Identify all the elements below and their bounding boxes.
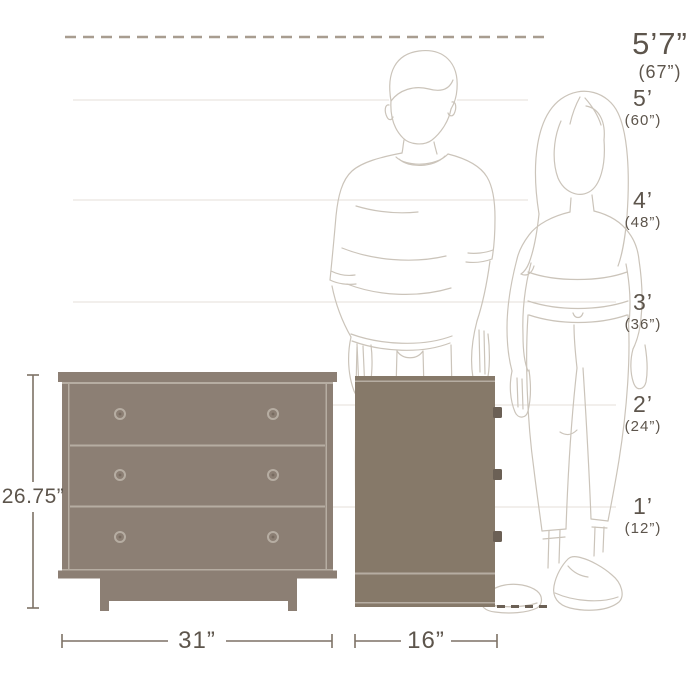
bottom-gap-line bbox=[62, 569, 333, 571]
height-marker-4ft: 4’ (48”) bbox=[593, 189, 693, 230]
depth-dimension-label: 16” bbox=[376, 629, 476, 653]
drawer-divider-1 bbox=[70, 445, 325, 447]
size-comparison-diagram: 5’7” (67”) 5’ (60”) 4’ (48”) 3’ (36”) 2’… bbox=[0, 0, 700, 700]
side-body bbox=[355, 376, 495, 607]
drawer-knob-dot bbox=[119, 413, 122, 416]
dresser-bottom-board bbox=[58, 571, 337, 579]
side-top-line bbox=[355, 381, 495, 383]
height-marker-inches: (48”) bbox=[593, 215, 693, 230]
height-marker-3ft: 3’ (36”) bbox=[593, 291, 693, 332]
height-marker-2ft: 2’ (24”) bbox=[593, 393, 693, 434]
width-dimension-label: 31” bbox=[147, 629, 247, 653]
dresser-top-board bbox=[58, 372, 337, 382]
dresser-front-view bbox=[58, 372, 337, 611]
height-marker-inches: (60”) bbox=[593, 113, 693, 128]
dresser-leg-right bbox=[288, 578, 297, 611]
drawer-knob-dot bbox=[119, 474, 122, 477]
height-marker-inches: (24”) bbox=[593, 419, 693, 434]
drawer-knob-dot bbox=[272, 536, 275, 539]
drawer-knob-dot bbox=[119, 536, 122, 539]
drawer-knob-dot bbox=[272, 413, 275, 416]
height-marker-label: 4’ bbox=[593, 189, 693, 212]
height-marker-label: 2’ bbox=[593, 393, 693, 416]
side-bottom-line bbox=[355, 602, 495, 604]
dresser-side-view bbox=[355, 376, 502, 607]
height-marker-5ft7: 5’7” (67”) bbox=[610, 28, 700, 81]
side-knob-tab bbox=[493, 469, 502, 480]
height-marker-label: 5’ bbox=[593, 87, 693, 110]
height-marker-5ft: 5’ (60”) bbox=[593, 87, 693, 128]
top-gap-line bbox=[62, 382, 333, 384]
side-base-line bbox=[355, 573, 495, 575]
height-marker-inches: (12”) bbox=[593, 521, 693, 536]
height-dimension-label: 26.75” bbox=[0, 486, 66, 507]
drawer-divider-2 bbox=[70, 506, 325, 508]
man-head-mask bbox=[389, 51, 457, 145]
height-marker-inches: (36”) bbox=[593, 317, 693, 332]
drawer-knob-dot bbox=[272, 474, 275, 477]
dresser-kick-panel bbox=[104, 578, 296, 601]
height-marker-label: 5’7” bbox=[610, 28, 700, 59]
side-knob-tab bbox=[493, 407, 502, 418]
dresser-body bbox=[62, 384, 333, 570]
height-marker-inches: (67”) bbox=[610, 63, 700, 81]
right-stile-line bbox=[326, 384, 328, 570]
height-marker-label: 3’ bbox=[593, 291, 693, 314]
height-marker-1ft: 1’ (12”) bbox=[593, 495, 693, 536]
left-stile-line bbox=[68, 384, 70, 570]
height-marker-label: 1’ bbox=[593, 495, 693, 518]
dresser-leg-left bbox=[100, 578, 109, 611]
side-knob-tab bbox=[493, 531, 502, 542]
